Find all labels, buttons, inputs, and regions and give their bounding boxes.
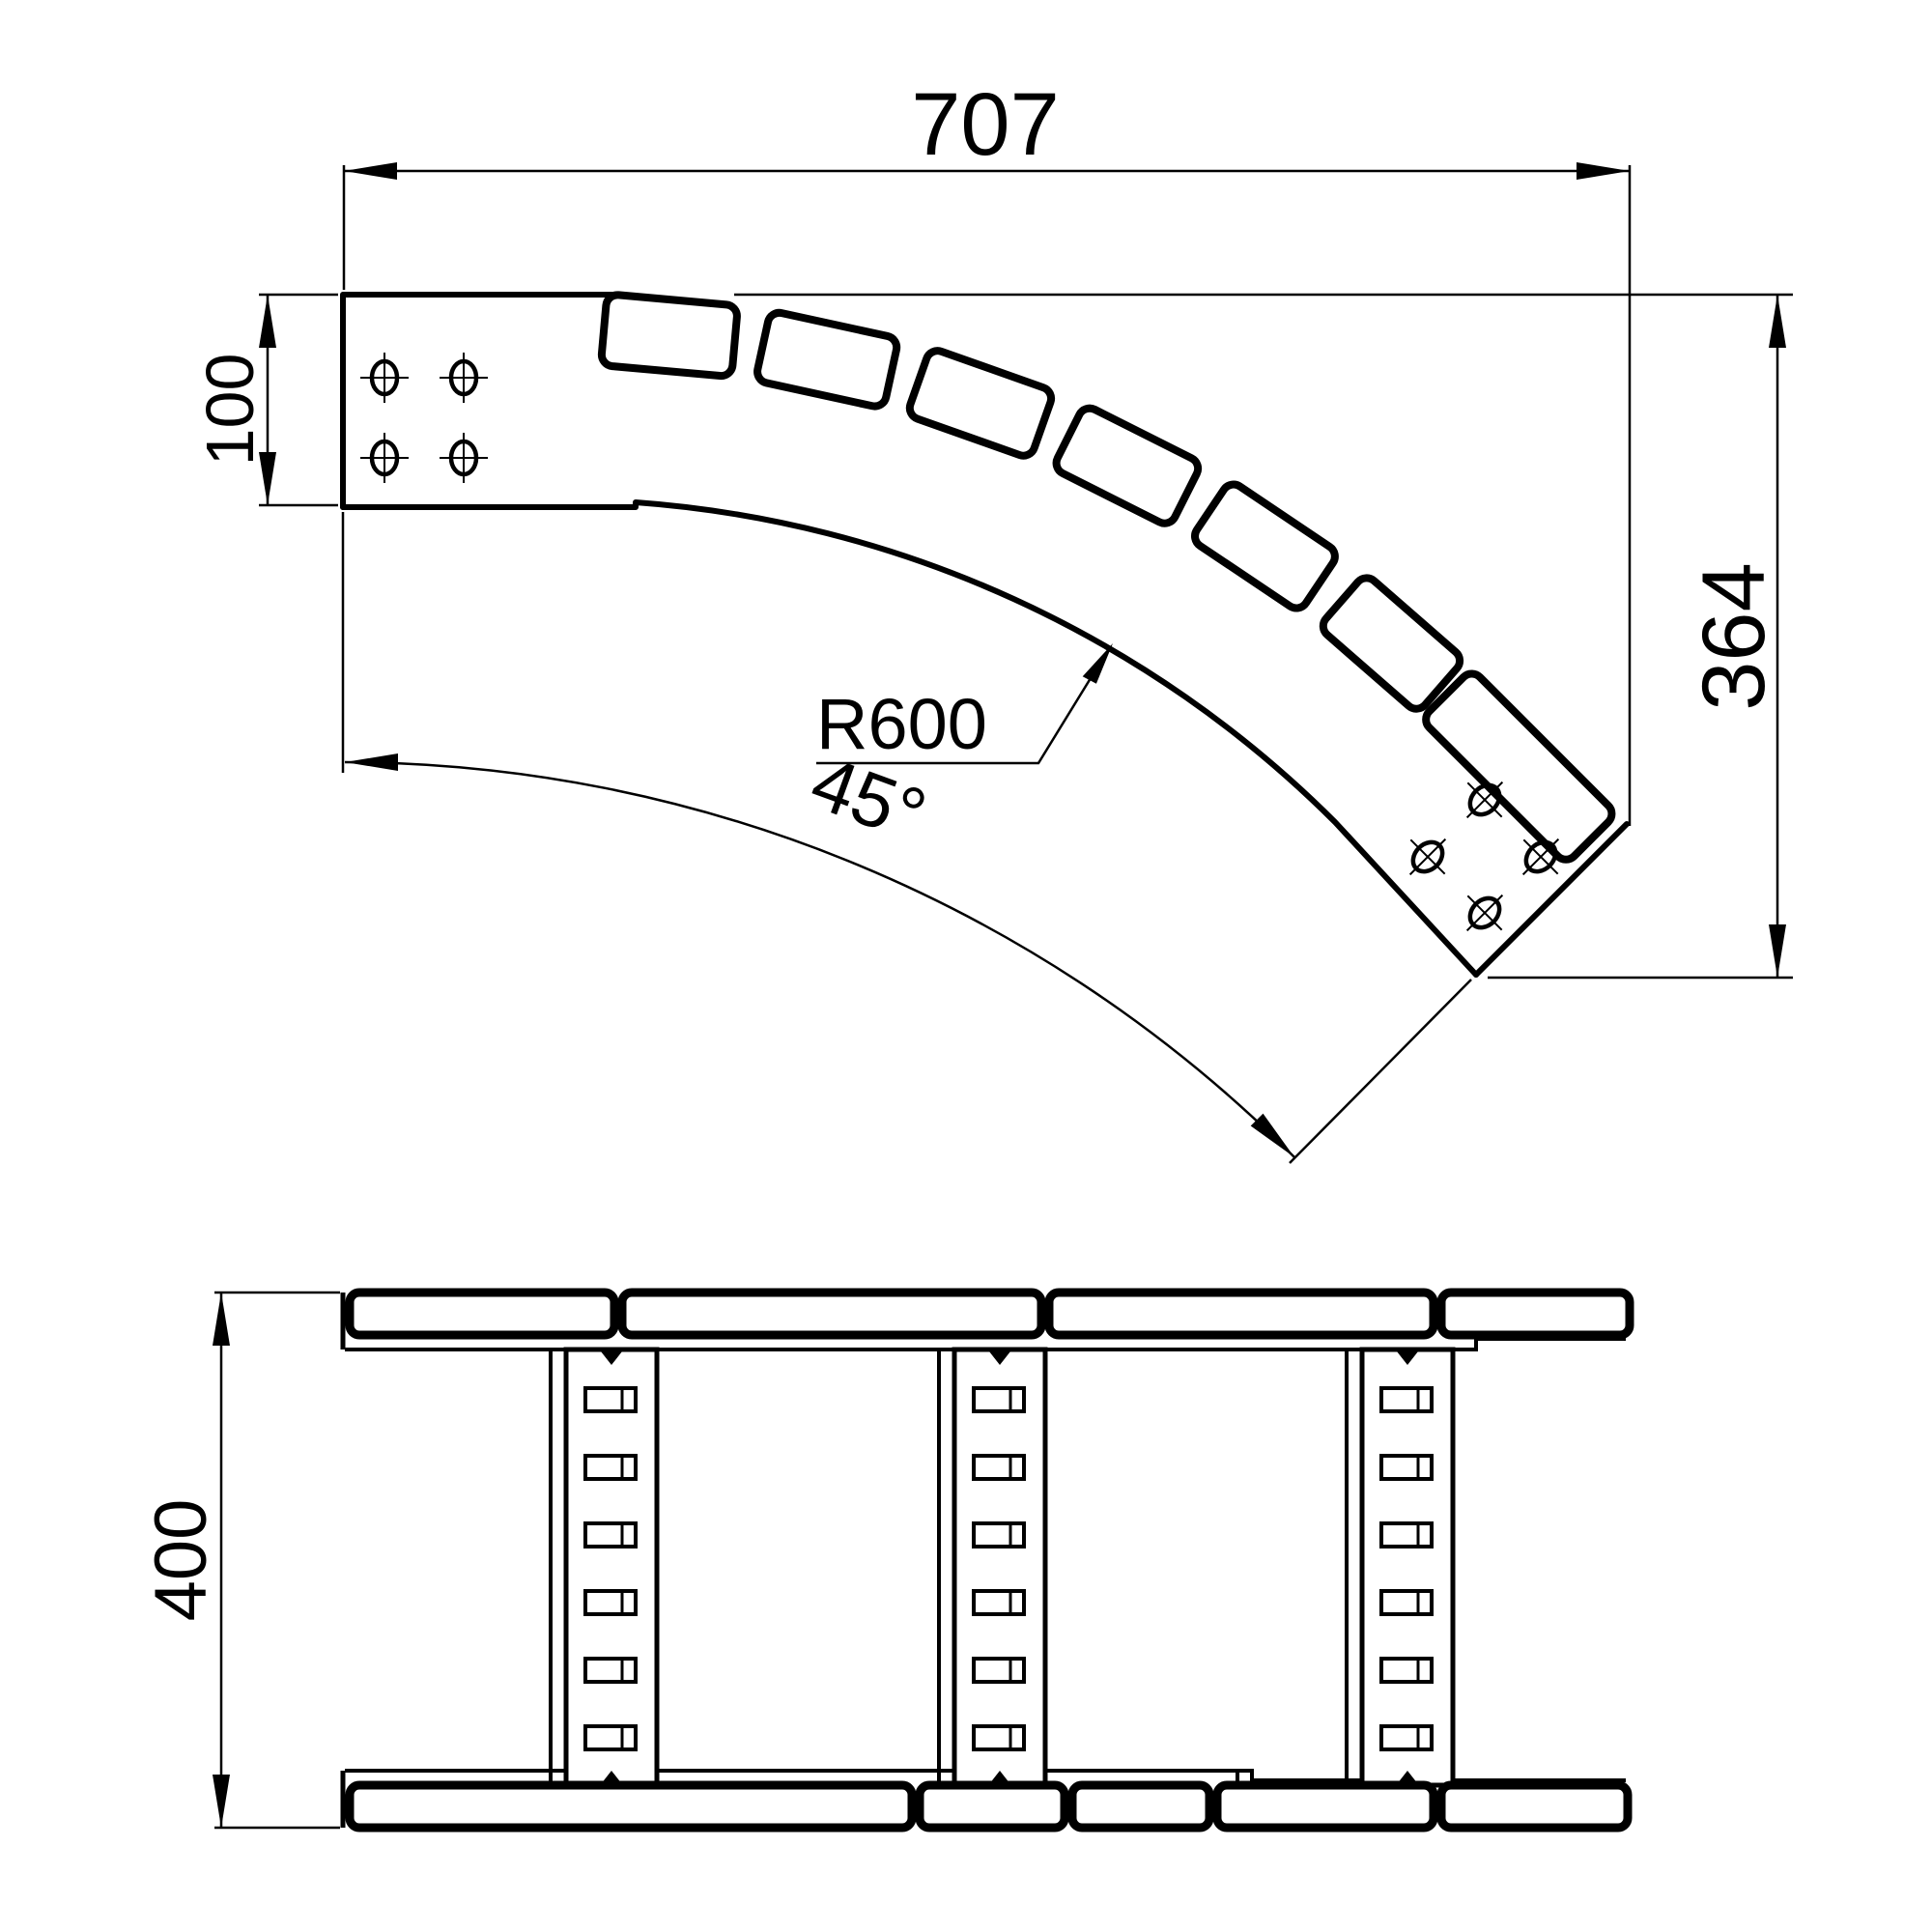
drawing-canvas: 707 100 364 R600 [0, 0, 1932, 1932]
segment-panel [1319, 573, 1464, 713]
rung-bar [1362, 1350, 1453, 1785]
dim-707-label: 707 [911, 75, 1060, 174]
arrowhead [345, 753, 398, 771]
bolt-hole [360, 433, 409, 483]
dim-364-label: 364 [1685, 562, 1783, 711]
ladder-plan-view: 400 [140, 1293, 1630, 1828]
rail-plate [1441, 1785, 1628, 1828]
dim-100-label: 100 [192, 354, 268, 467]
arrowhead [213, 1293, 230, 1346]
arrowhead [344, 162, 397, 180]
arrowhead [1769, 295, 1786, 348]
bolt-hole [1393, 822, 1463, 892]
rail-plate [1072, 1785, 1209, 1828]
rail-plate [350, 1785, 912, 1828]
segment-panel [601, 294, 738, 377]
dim-400-label: 400 [140, 1499, 222, 1622]
dimension-364: 364 [734, 295, 1793, 978]
arrowhead [213, 1775, 230, 1828]
segment-panel [1052, 405, 1202, 527]
bottom-rail-plates [350, 1785, 1628, 1828]
top-rail-plates [350, 1293, 1630, 1335]
arrowhead [1083, 643, 1113, 684]
technical-drawing: 707 100 364 R600 [0, 0, 1932, 1932]
rail-plate [1441, 1293, 1630, 1335]
rung-bar [566, 1350, 657, 1785]
dimension-400: 400 [140, 1293, 340, 1828]
dimension-100: 100 [192, 295, 338, 505]
bolt-hole [360, 353, 409, 403]
arrowhead [1251, 1114, 1294, 1157]
segment-panel [1190, 480, 1339, 612]
rail-plate [350, 1293, 614, 1335]
rail-plate [920, 1785, 1065, 1828]
bend-segment-panels [601, 294, 1617, 864]
arrowhead [259, 295, 276, 348]
rung-column-3 [1347, 1350, 1453, 1785]
bolt-holes-left [360, 353, 488, 483]
arrowhead [1577, 162, 1630, 180]
rung-bar [954, 1350, 1045, 1785]
radius-callout: R600 [816, 643, 1113, 764]
segment-panel [907, 348, 1055, 459]
end-segment-panel [1421, 669, 1616, 865]
rail-plate [622, 1293, 1041, 1335]
bend-top-view: 707 100 364 R600 [192, 75, 1793, 1163]
bolt-hole [440, 433, 488, 483]
bolt-hole [1450, 878, 1520, 948]
rail-plate [1049, 1293, 1434, 1335]
bolt-hole [440, 353, 488, 403]
rung-column-1 [551, 1350, 657, 1785]
rail-plate [1217, 1785, 1434, 1828]
arrowhead [1769, 924, 1786, 978]
rung-column-2 [939, 1350, 1045, 1785]
segment-panel [755, 311, 899, 409]
